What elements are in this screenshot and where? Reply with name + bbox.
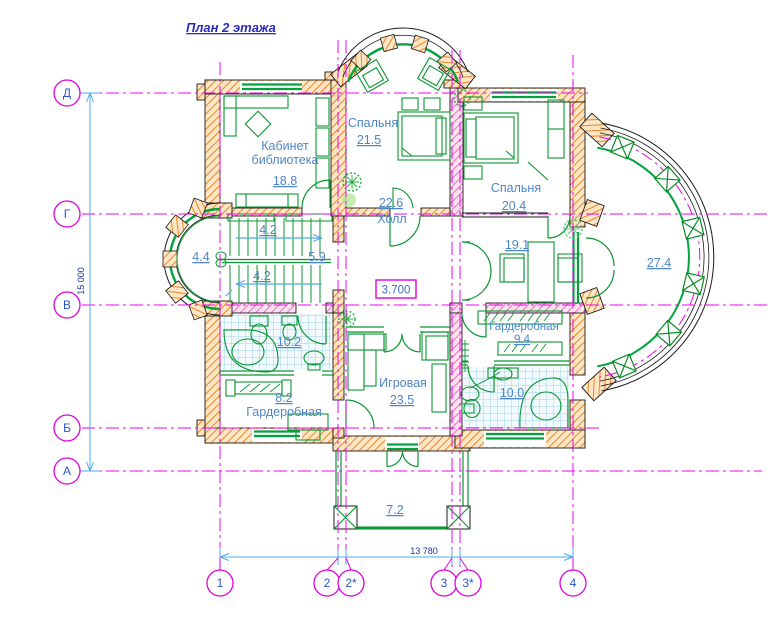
hall-area: 22.6 — [379, 196, 403, 210]
stair-bay-area: 4.4 — [192, 250, 209, 264]
stair-run-bottom-area: 4.2 — [253, 269, 270, 283]
bedroom2-furniture — [464, 97, 564, 180]
wall-g-mid2 — [421, 208, 450, 216]
bath1-area: 10.2 — [277, 335, 301, 349]
axis-label-b: Б — [63, 421, 71, 435]
bedroom1-name: Спальня — [348, 116, 398, 130]
axis-label-4: 4 — [570, 576, 577, 590]
axis-label-3s: 3* — [462, 576, 474, 590]
wardrobe2-name: Гардеробная — [489, 321, 559, 333]
axis-label-a: А — [63, 464, 71, 478]
playroom-area: 23.5 — [390, 393, 414, 407]
wall-left-upper — [205, 80, 220, 212]
bedroom1-area: 21.5 — [357, 133, 381, 147]
stair-direction-arrows — [226, 235, 322, 297]
wardrobe2-area: 9.4 — [514, 334, 531, 346]
stair-hall-area: 5.9 — [308, 250, 325, 264]
wall-right-upper — [570, 102, 585, 227]
playroom-name: Игровая — [379, 376, 427, 390]
axis-grid — [58, 40, 768, 568]
bath2-area: 10.0 — [500, 386, 524, 400]
axis-label-d: Д — [63, 86, 71, 100]
elevation-marker: 3.700 — [376, 280, 416, 298]
axis-label-2: 2 — [324, 576, 331, 590]
wardrobe1-name: Гардеробная — [246, 405, 322, 419]
dimension-vertical: 15 000 — [76, 267, 86, 295]
axis-label-v: В — [63, 298, 71, 312]
dimension-horizontal: 13 780 — [410, 546, 438, 556]
axis-label-g: Г — [64, 207, 71, 221]
hall-name: Холл — [377, 212, 406, 226]
floor-plan-screenshot: Д Г В Б А 1 2 2* 3 3* 4 13 780 15 000 3.… — [0, 0, 784, 631]
axis-label-3: 3 — [441, 576, 448, 590]
axis-label-1: 1 — [217, 576, 224, 590]
elevation-value: 3.700 — [382, 285, 411, 297]
cabinet-name: Кабинет — [261, 139, 309, 153]
terrace-area: 27.4 — [647, 256, 671, 270]
balcony — [334, 451, 470, 529]
balcony-area: 7.2 — [386, 503, 403, 517]
wardrobe1-area: 8.2 — [275, 391, 292, 405]
axis-label-2s: 2* — [345, 576, 357, 590]
floor-plan-drawing: Д Г В Б А 1 2 2* 3 3* 4 13 780 15 000 3.… — [0, 0, 784, 631]
bedroom2-area: 20.4 — [502, 199, 526, 213]
study-area: 19.1 — [505, 238, 529, 252]
cabinet-name2: библиотека — [252, 153, 319, 167]
stair-run-top-area: 4.2 — [259, 223, 276, 237]
cabinet-area: 18.8 — [273, 174, 297, 188]
wall-left-lower — [205, 310, 220, 443]
wall-right-mid — [570, 303, 585, 375]
bedroom2-name: Спальня — [491, 181, 541, 195]
page-title: План 2 этажа — [186, 20, 276, 35]
